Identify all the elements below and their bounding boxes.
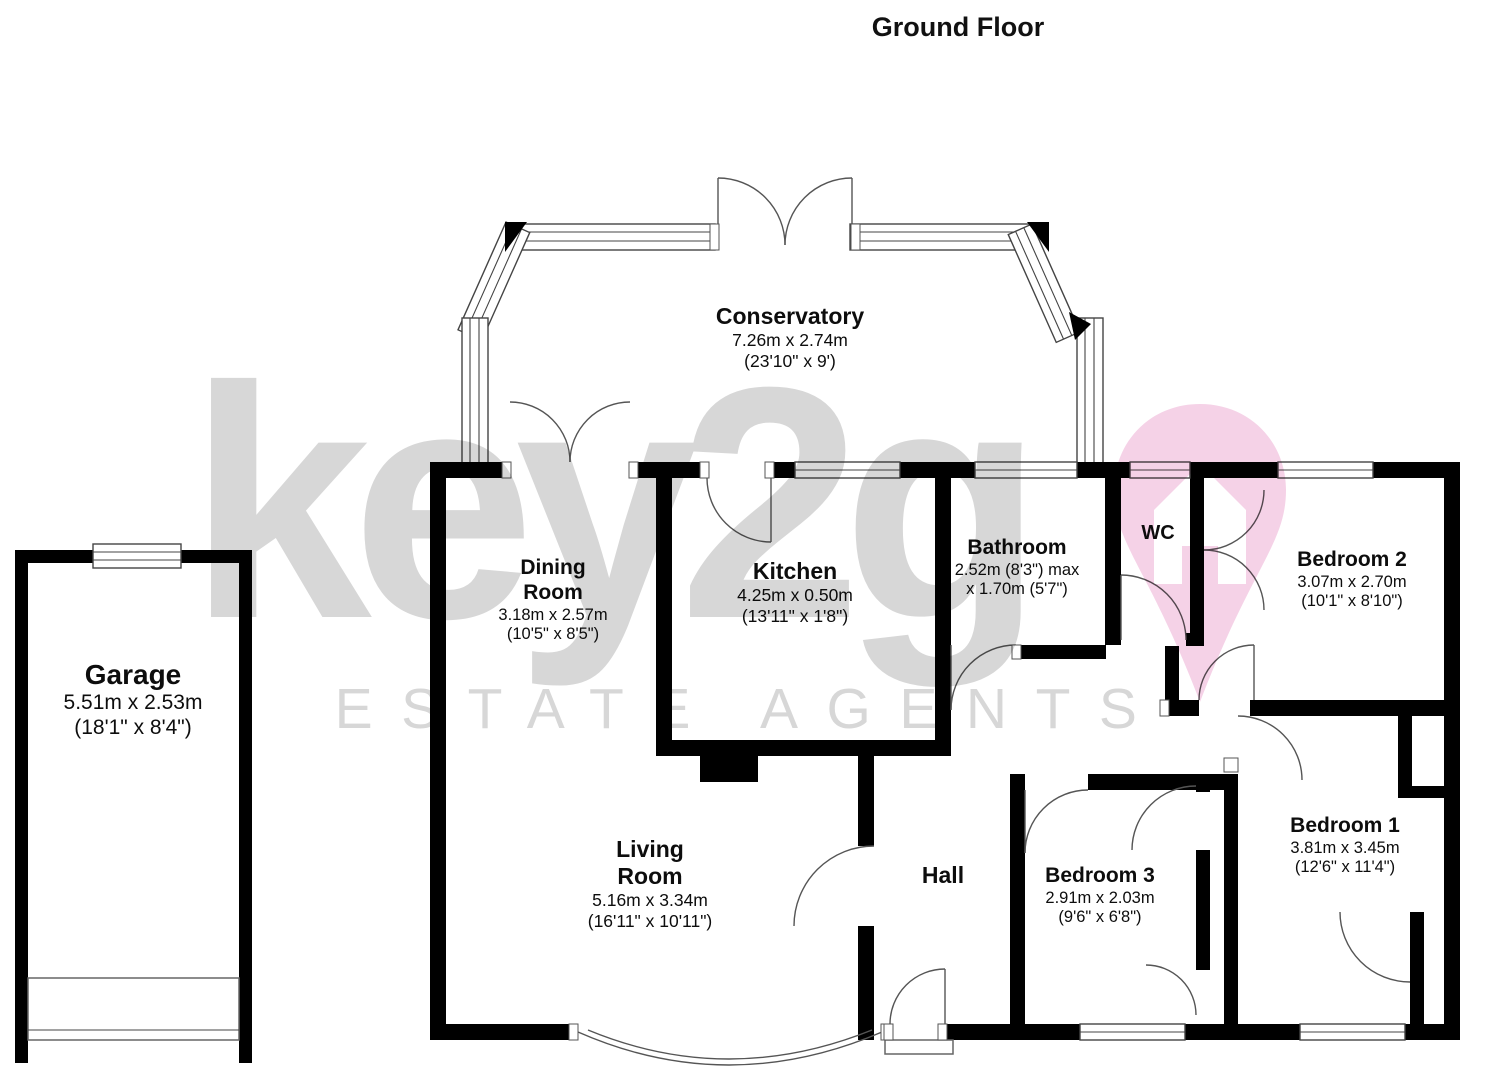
room-name: Bedroom 1 (1290, 814, 1400, 839)
floorplan-page: Ground Floor (0, 0, 1485, 1080)
bedroom2-closet-door-icon (1204, 490, 1264, 610)
room-name: WC (1141, 522, 1174, 546)
conservatory-double-door-icon (710, 178, 860, 250)
front-door-icon (884, 969, 953, 1054)
wc-door-icon (1121, 575, 1186, 640)
room-dims: 2.91m x 2.03m (1045, 889, 1155, 908)
room-dims: 3.81m x 3.45m (1290, 839, 1400, 858)
room-dims: (23'10" x 9') (716, 351, 864, 372)
room-dims: 2.52m (8'3") max (955, 561, 1080, 580)
room-dims: (12'6" x 11'4") (1290, 858, 1400, 877)
room-dims: (9'6" x 6'8") (1045, 908, 1155, 927)
room-label-bathroom: Bathroom 2.52m (8'3") max x 1.70m (5'7") (955, 536, 1080, 600)
bathroom-window-icon (975, 462, 1077, 478)
room-name: Bedroom 2 (1297, 548, 1407, 573)
bedroom2-window-icon (1278, 462, 1373, 478)
room-name: Hall (922, 862, 964, 889)
living-room-bay-window-icon (569, 1024, 890, 1065)
room-name: Bathroom (955, 536, 1080, 561)
kitchen-door-icon (700, 462, 774, 542)
page-title: Ground Floor (872, 12, 1044, 43)
bedroom1-door-icon (1224, 716, 1302, 780)
room-label-bedroom3: Bedroom 3 2.91m x 2.03m (9'6" x 6'8") (1045, 864, 1155, 928)
bedroom3-window-icon (1080, 1024, 1185, 1040)
room-name: Bedroom 3 (1045, 864, 1155, 889)
room-name: Kitchen (737, 558, 853, 585)
bedroom3-door-icon (1025, 790, 1088, 853)
room-name: Dining Room (493, 556, 613, 606)
room-dims: x 1.70m (5'7") (955, 580, 1080, 599)
room-label-hall: Hall (922, 862, 964, 889)
room-dims: 7.26m x 2.74m (716, 330, 864, 351)
bedroom1-window-icon (1300, 1024, 1405, 1040)
room-dims: 5.51m x 2.53m (64, 691, 203, 716)
room-dims: 5.16m x 3.34m (588, 890, 713, 911)
room-label-bedroom1: Bedroom 1 3.81m x 3.45m (12'6" x 11'4") (1290, 814, 1400, 878)
bedroom1-closet-door-icon (1340, 912, 1410, 982)
garage-door-icon (28, 978, 239, 1040)
room-dims: 3.07m x 2.70m (1297, 573, 1407, 592)
room-label-kitchen: Kitchen 4.25m x 0.50m (13'11" x 1'8") (737, 558, 853, 626)
bathroom-door-icon (951, 645, 1021, 710)
room-label-bedroom2: Bedroom 2 3.07m x 2.70m (10'1" x 8'10") (1297, 548, 1407, 612)
living-room-door-icon (794, 846, 874, 926)
floorplan-drawing (0, 0, 1485, 1080)
garage-window-icon (93, 544, 181, 568)
room-label-conservatory: Conservatory 7.26m x 2.74m (23'10" x 9') (716, 303, 864, 371)
room-dims: (10'5" x 8'5") (493, 625, 613, 644)
room-name: Conservatory (716, 303, 864, 330)
room-label-wc: WC (1141, 522, 1174, 546)
wc-window-icon (1130, 462, 1190, 478)
dining-conservatory-double-door-icon (502, 402, 638, 478)
kitchen-window-icon (795, 462, 900, 478)
room-name: Living Room (590, 836, 710, 890)
room-dims: (13'11" x 1'8") (737, 606, 853, 627)
room-label-garage: Garage 5.51m x 2.53m (18'1" x 8'4") (64, 658, 203, 741)
room-dims: 4.25m x 0.50m (737, 585, 853, 606)
room-dims: (16'11" x 10'11") (588, 911, 713, 932)
room-label-living-room: Living Room 5.16m x 3.34m (16'11" x 10'1… (588, 836, 713, 932)
room-dims: (18'1" x 8'4") (64, 716, 203, 741)
room-label-dining-room: Dining Room 3.18m x 2.57m (10'5" x 8'5") (493, 556, 613, 644)
room-dims: 3.18m x 2.57m (493, 606, 613, 625)
room-name: Garage (64, 658, 203, 691)
room-dims: (10'1" x 8'10") (1297, 592, 1407, 611)
